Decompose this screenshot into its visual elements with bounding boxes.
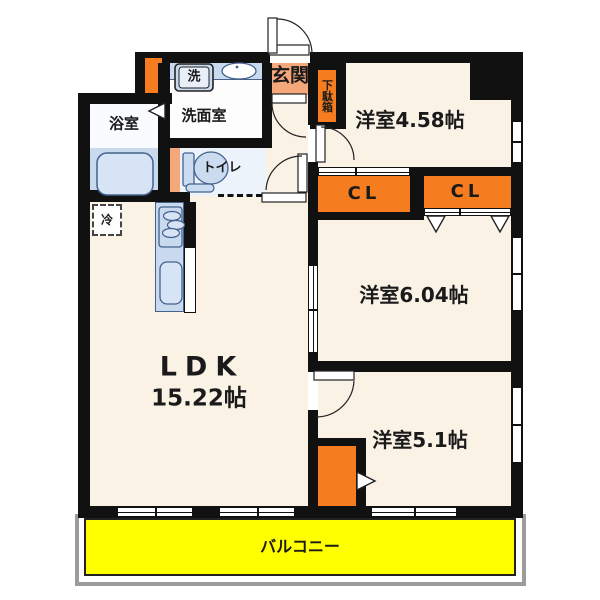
washroom-sink — [222, 63, 256, 79]
label-refrigerator: 冷 — [101, 214, 113, 226]
kitchen-sink — [160, 262, 182, 304]
label-entrance: 玄関 — [271, 67, 309, 86]
bedroom1-door-arc — [321, 127, 354, 160]
washroom-sink-faucet — [236, 66, 239, 69]
label-ldk: LDK — [160, 354, 245, 381]
entrance-door-leaf — [268, 18, 277, 53]
label-bedroom3: 洋室5.1帖 — [372, 430, 467, 450]
bedroom1-door-leaf — [316, 125, 325, 162]
label-closet2: CL — [451, 183, 484, 201]
bathtub — [97, 153, 153, 195]
bedroom3-closet-door-marker — [357, 472, 375, 490]
stove-burner-3 — [163, 229, 180, 238]
label-toilet: トイレ — [202, 162, 241, 175]
hall-door-leaf — [272, 94, 306, 103]
label-bath: 浴室 — [109, 117, 139, 132]
bedroom3-door-arc — [316, 381, 354, 417]
ldk-door-threshold — [262, 193, 306, 202]
label-closet1: CL — [348, 185, 381, 203]
label-bedroom2: 洋室6.04帖 — [359, 285, 468, 305]
label-washroom: 洗面室 — [181, 109, 226, 124]
label-bedroom1: 洋室4.58帖 — [355, 110, 464, 130]
closet2-chevron-left — [427, 216, 445, 232]
label-balcony: バルコニー — [260, 539, 340, 555]
door-fixture-layer — [0, 0, 600, 600]
label-shoe-cabinet: 下駄箱 — [322, 80, 333, 113]
label-washer: 洗 — [187, 71, 200, 84]
ldk-door-arc — [266, 156, 302, 190]
hall-door-arc — [272, 103, 306, 137]
closet2-chevron-right — [491, 216, 509, 232]
ldk-door-leaf — [298, 154, 307, 192]
toilet-base — [186, 184, 214, 192]
stove-burner-1 — [164, 212, 181, 221]
bath-door-marker — [149, 103, 165, 119]
bedroom3-door-leaf — [314, 371, 354, 380]
toilet-tank — [183, 153, 194, 186]
label-ldk-area: 15.22帖 — [151, 388, 247, 411]
floorplan: 浴室 洗面室 洗 玄関 下駄箱 トイレ 冷 LDK 15.22帖 洋室4.58帖… — [0, 0, 600, 600]
